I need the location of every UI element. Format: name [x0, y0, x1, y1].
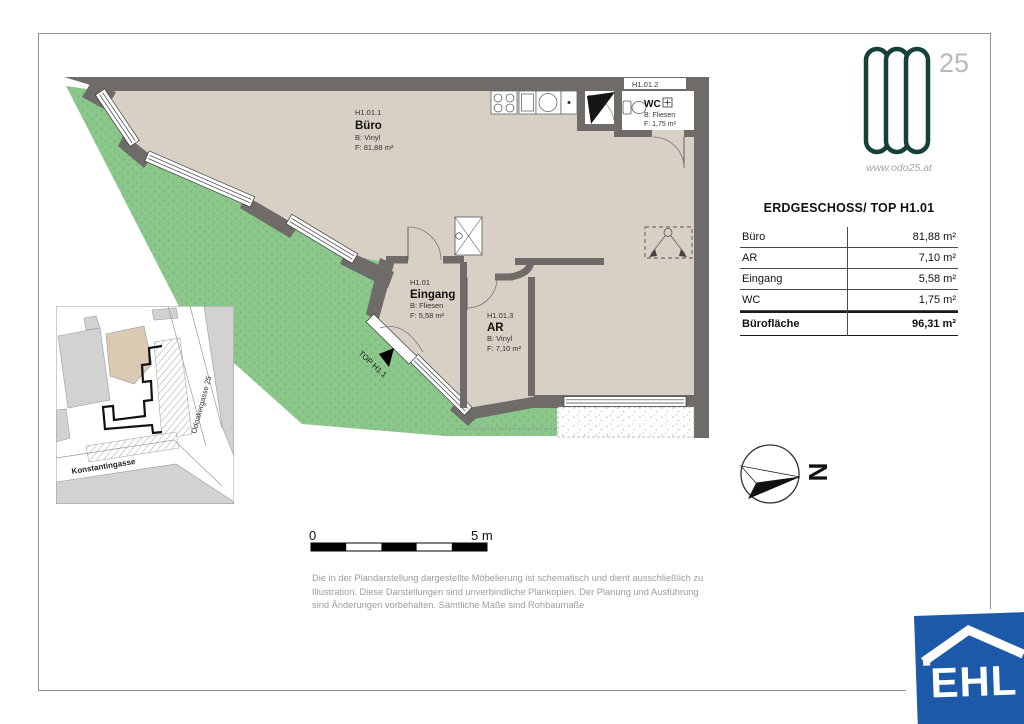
room-name-wc: WC: [644, 99, 661, 110]
row-label: Büro: [742, 231, 765, 243]
svg-text:F: 7,10 m²: F: 7,10 m²: [487, 344, 522, 353]
svg-text:F: 81,88 m²: F: 81,88 m²: [355, 143, 394, 152]
table-row: Büro 81,88 m²: [740, 227, 958, 248]
row-label: Eingang: [742, 273, 782, 285]
odo25-capsules: [866, 49, 928, 152]
row-value: 7,10 m²: [919, 252, 956, 264]
row-value: 1,75 m²: [919, 294, 956, 306]
svg-text:H1.01: H1.01: [410, 278, 430, 287]
total-label: Bürofläche: [742, 318, 799, 330]
svg-text:Büro: Büro: [355, 120, 382, 132]
table-row: AR 7,10 m²: [740, 248, 958, 269]
room-floor-wc: B: Fliesen: [644, 112, 675, 119]
total-value: 96,31 m²: [912, 318, 956, 330]
svg-text:F: 5,58 m²: F: 5,58 m²: [410, 311, 445, 320]
row-value: 81,88 m²: [913, 231, 956, 243]
sink-icon: [539, 94, 557, 112]
row-label: WC: [742, 294, 760, 306]
row-label: AR: [742, 252, 757, 264]
odo25-logo: 25 www.odo25.at: [860, 40, 990, 182]
odo25-number: 25: [939, 48, 969, 78]
svg-text:AR: AR: [487, 322, 504, 334]
scale-start-label: 0: [309, 528, 316, 543]
svg-text:H1.01.1: H1.01.1: [355, 108, 381, 117]
terrace-stipple: [558, 407, 694, 437]
table-divider: [847, 227, 848, 336]
ehl-logo-text: EHL: [918, 656, 1024, 708]
shaft-symbol-1: [455, 217, 482, 255]
scale-end-label: 5 m: [471, 528, 493, 543]
ehl-logo: EHL: [906, 609, 1024, 724]
table-row: WC 1,75 m²: [740, 290, 958, 311]
svg-text:Eingang: Eingang: [410, 289, 455, 301]
plan-sheet: TOP H1.1: [0, 0, 1024, 724]
north-arrow: N: [741, 445, 833, 503]
table-total-row: Bürofläche 96,31 m²: [740, 311, 958, 336]
room-area-wc: F: 1,75 m²: [644, 121, 677, 128]
svg-text:B: Vinyl: B: Vinyl: [355, 133, 381, 142]
kitchenette: [491, 91, 577, 114]
north-letter: N: [803, 463, 833, 482]
scale-bar: 0 5 m: [309, 528, 493, 551]
area-table-rows: Büro 81,88 m² AR 7,10 m² Eingang 5,58 m²…: [740, 227, 958, 336]
room-id-wc: H1.01.2: [632, 80, 658, 89]
row-value: 5,58 m²: [919, 273, 956, 285]
site-map: Konstantingasse Odoakergasse 25: [56, 306, 234, 504]
closet-room: [585, 91, 615, 124]
table-row: Eingang 5,58 m²: [740, 269, 958, 290]
svg-text:H1.01.3: H1.01.3: [487, 311, 513, 320]
website-label: www.odo25.at: [866, 162, 933, 174]
disclaimer-text: Die in der Plandarstellung dargestellte …: [312, 572, 716, 613]
ehl-logo-box: EHL: [914, 612, 1024, 724]
area-table-title: ERDGESCHOSS/ TOP H1.01: [740, 201, 958, 215]
area-table: ERDGESCHOSS/ TOP H1.01 Büro 81,88 m² AR …: [740, 201, 958, 336]
svg-text:B: Fliesen: B: Fliesen: [410, 301, 443, 310]
wc-room: H1.01.2 WC B: Fliesen F: 1,75 m²: [622, 78, 694, 130]
svg-text:B: Vinyl: B: Vinyl: [487, 334, 513, 343]
